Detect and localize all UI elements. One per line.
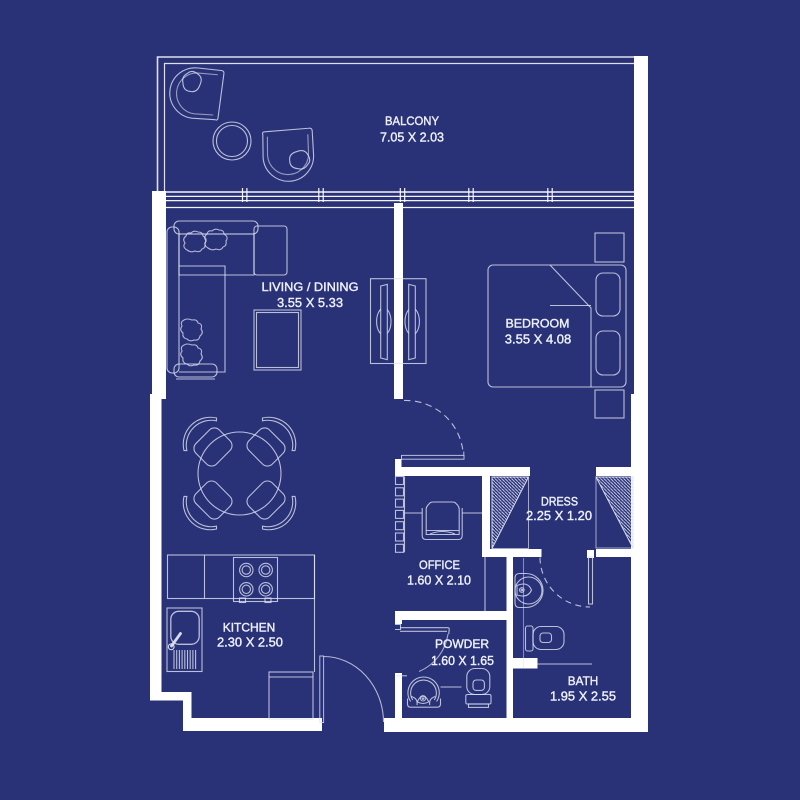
- svg-text:DRESS: DRESS: [541, 495, 578, 509]
- svg-text:3.55 X 5.33: 3.55 X 5.33: [277, 296, 343, 310]
- svg-text:OFFICE: OFFICE: [419, 558, 460, 572]
- svg-text:BATH: BATH: [568, 674, 599, 688]
- svg-text:POWDER: POWDER: [435, 637, 489, 651]
- svg-text:1.60 X 2.10: 1.60 X 2.10: [407, 574, 471, 588]
- svg-text:7.05 X 2.03: 7.05 X 2.03: [380, 131, 444, 145]
- svg-text:2.25 X 1.20: 2.25 X 1.20: [526, 509, 592, 523]
- svg-text:BEDROOM: BEDROOM: [506, 317, 570, 331]
- svg-text:KITCHEN: KITCHEN: [223, 621, 276, 635]
- svg-text:1.60 X 1.65: 1.60 X 1.65: [431, 654, 494, 668]
- svg-text:BALCONY: BALCONY: [385, 114, 439, 128]
- svg-text:2.30 X 2.50: 2.30 X 2.50: [217, 636, 283, 650]
- svg-text:LIVING / DINING: LIVING / DINING: [262, 280, 359, 294]
- svg-text:1.95 X 2.55: 1.95 X 2.55: [550, 690, 616, 704]
- svg-text:3.55 X 4.08: 3.55 X 4.08: [505, 333, 572, 347]
